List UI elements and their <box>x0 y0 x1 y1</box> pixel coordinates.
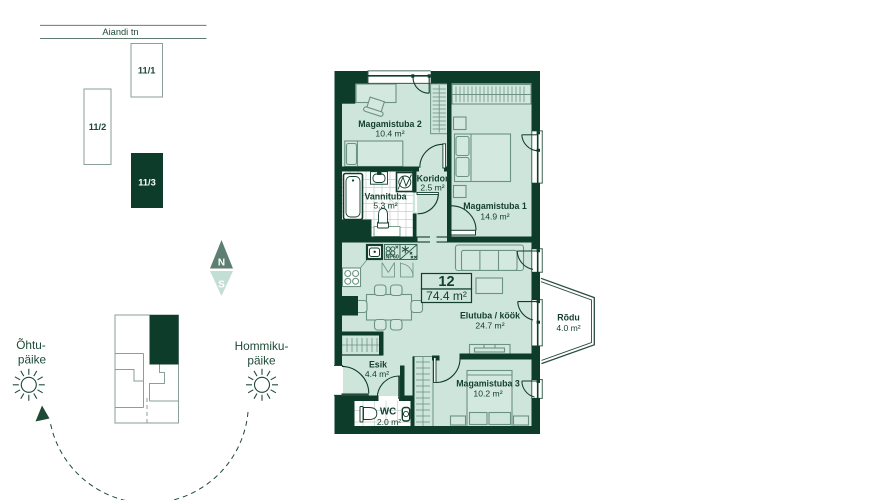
svg-text:Magamistuba 3: Magamistuba 3 <box>456 379 520 389</box>
svg-text:Magamistuba 2: Magamistuba 2 <box>358 119 422 129</box>
svg-text:Õhtu-: Õhtu- <box>16 338 46 352</box>
svg-text:Aiandi tn: Aiandi tn <box>102 27 138 37</box>
svg-text:4.0 m²: 4.0 m² <box>556 323 580 333</box>
svg-text:11/2: 11/2 <box>89 122 107 132</box>
svg-text:päike: päike <box>247 354 276 368</box>
svg-text:N: N <box>218 258 225 269</box>
svg-text:S: S <box>218 280 225 291</box>
svg-text:Rõdu: Rõdu <box>557 313 579 323</box>
svg-text:5.3 m²: 5.3 m² <box>373 201 397 211</box>
svg-text:2.0 m²: 2.0 m² <box>377 417 401 427</box>
svg-text:Elutuba / köök: Elutuba / köök <box>460 311 520 321</box>
svg-text:WC: WC <box>380 407 396 418</box>
svg-text:11/1: 11/1 <box>138 66 156 76</box>
svg-text:Magamistuba 1: Magamistuba 1 <box>463 201 527 211</box>
svg-text:NP60: NP60 <box>385 255 399 261</box>
svg-text:10.2 m²: 10.2 m² <box>473 389 502 399</box>
svg-text:12: 12 <box>438 274 454 290</box>
svg-text:4.4 m²: 4.4 m² <box>365 369 389 379</box>
svg-text:2.5 m²: 2.5 m² <box>420 183 444 193</box>
svg-text:14.9 m²: 14.9 m² <box>480 212 509 222</box>
svg-text:päike: päike <box>18 353 47 367</box>
svg-text:74.4 m²: 74.4 m² <box>426 289 467 303</box>
svg-text:Esik: Esik <box>369 360 387 370</box>
svg-text:10.4 m²: 10.4 m² <box>375 129 404 139</box>
svg-text:11/3: 11/3 <box>138 178 156 188</box>
svg-text:Hommiku-: Hommiku- <box>235 339 289 353</box>
svg-text:24.7 m²: 24.7 m² <box>475 321 504 331</box>
